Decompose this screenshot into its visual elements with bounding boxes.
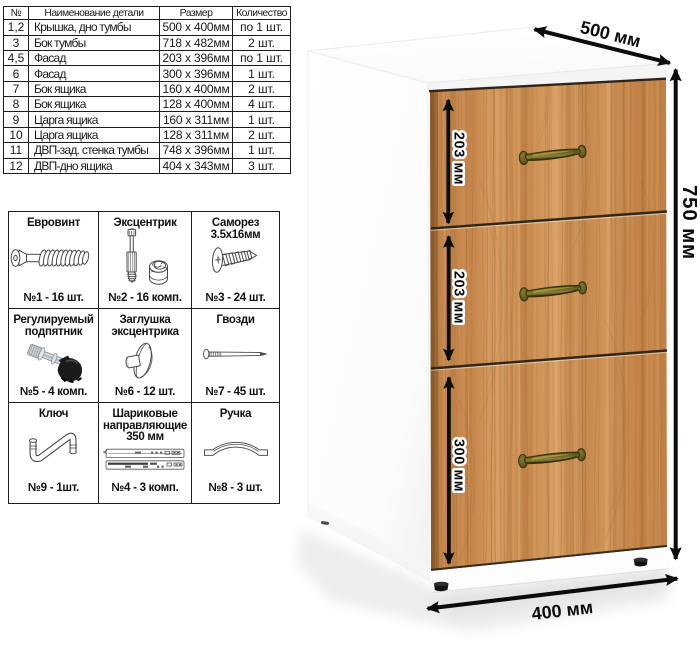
svg-text:300 мм: 300 мм — [451, 439, 467, 492]
svg-text:203 мм: 203 мм — [450, 132, 466, 185]
svg-text:203 мм: 203 мм — [451, 271, 467, 324]
svg-text:750 мм: 750 мм — [678, 185, 700, 260]
